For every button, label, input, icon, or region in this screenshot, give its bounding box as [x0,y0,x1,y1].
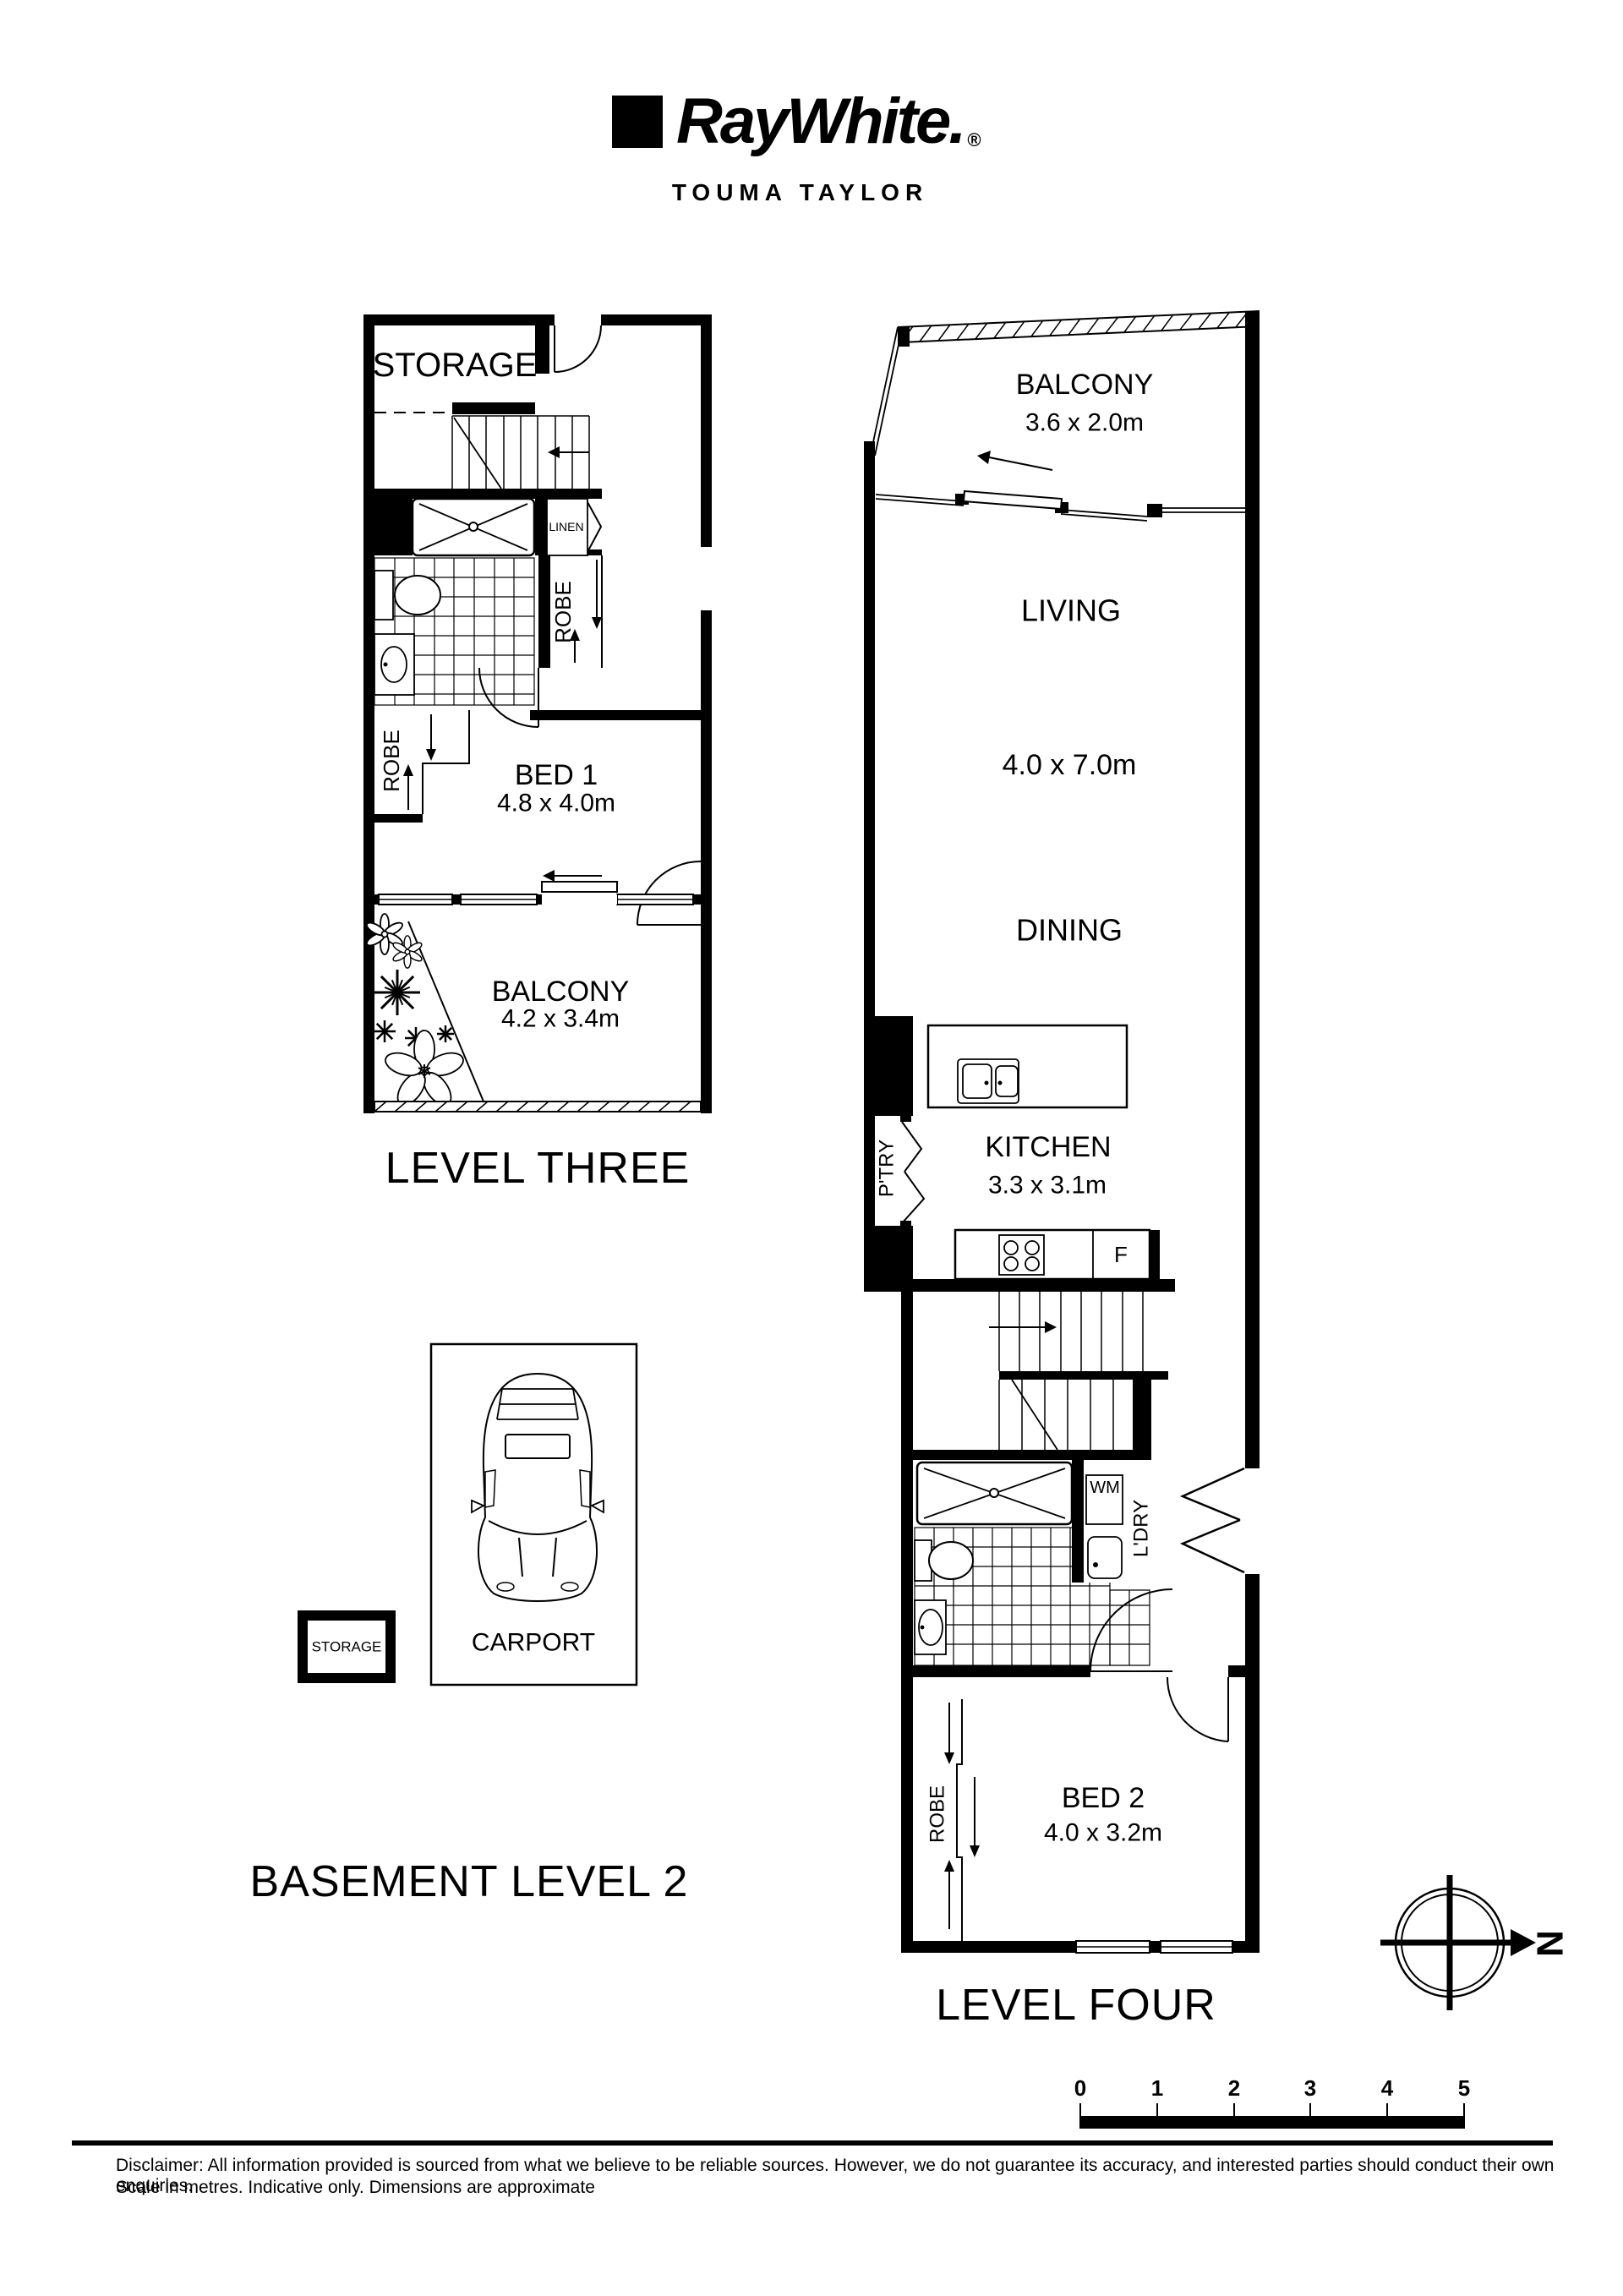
arrow-down-icon [944,1752,954,1764]
scale-label-5: 5 [1458,2075,1470,2102]
l3-bedroom-door-icon [637,861,701,925]
arrow-down-icon [970,1845,980,1857]
bed2-door-icon [1167,1677,1228,1741]
basement-storage-box: STORAGE [298,1610,396,1683]
bed2-label: BED 2 [1062,1782,1145,1814]
l3-bed1-robe: ROBE [379,710,469,814]
toilet-icon [395,576,440,615]
bed2-robe: ROBE [926,1699,981,1941]
level-three-title: LEVEL THREE [363,1143,712,1194]
l3-linen-closet: LINEN [547,499,602,555]
stair-arrow-icon [1045,1321,1057,1333]
sliding-door-panel [542,882,617,892]
level-four-plan: BALCONY 3.6 x 2.0m LIVING 4.0 x 7.0m DIN… [862,304,1264,1957]
scale-label-2: 2 [1228,2075,1240,2102]
scale-label-4: 4 [1381,2075,1393,2102]
bathroom-door-icon [1090,1589,1172,1671]
bed1-dims: 4.8 x 4.0m [497,790,615,817]
l3-hall-robe: ROBE [550,555,602,668]
north-label: N [1529,1930,1571,1957]
scale-bar-rule [1079,2116,1465,2129]
scale-tick [1386,2103,1388,2116]
plant-shrub-icon [437,1025,454,1042]
pantry: P'TRY [876,1122,925,1223]
level-three-plan: LINEN ROBE [363,314,712,1113]
level-four-title: LEVEL FOUR [862,1980,1290,2031]
plant-fern-icon [374,970,420,1015]
l3-window-wall [379,870,693,905]
storage-label: STORAGE [373,347,538,384]
dining-label: DINING [1016,913,1123,948]
car-icon [472,1374,604,1601]
basement-plan: CARPORT STORAGE [287,1340,668,1703]
balcony-dims: 4.2 x 3.4m [501,1005,620,1033]
l4-balcony-label: BALCONY [1016,369,1154,401]
laundry-tub-icon [1088,1537,1122,1578]
bed1-label: BED 1 [515,759,598,791]
scale-label-3: 3 [1304,2075,1316,2102]
arrow-down-icon [426,749,436,761]
laundry-nook: WM L'DRY [1084,1468,1244,1583]
registered-mark: ® [967,129,981,151]
bathroom-door-icon [479,668,538,727]
kitchen-bench: F [955,1230,1150,1279]
robe-hall-label: ROBE [550,581,576,643]
plant-big-flower-icon [383,1030,467,1110]
floorplan-page: RayWhite. ® TOUMA TAYLOR [0,0,1623,2296]
scale-label-1: 1 [1151,2075,1163,2102]
toilet-icon [929,1542,973,1579]
plant-shrub-icon [374,1020,396,1042]
scale-tick [1233,2103,1235,2116]
stair-arrow-icon [548,446,560,458]
fridge-label: F [1114,1242,1128,1267]
bifold-door-icon [1183,1520,1244,1572]
arrow-down-icon [592,617,602,629]
balcony-label: BALCONY [492,976,630,1008]
ray-white-logo: RayWhite. ® [612,85,981,158]
kitchen-dims: 3.3 x 3.1m [988,1172,1107,1200]
sliding-door-panel [964,491,1062,509]
living-dims: 4.0 x 7.0m [1003,749,1137,781]
l3-shower-icon [413,499,534,555]
l3-stairs [452,416,589,489]
l3-entry-door-icon [555,325,601,372]
slide-arrow-icon [977,451,991,464]
slide-arrow-icon [543,870,555,882]
disclaimer-line-2: Scale in metres. Indicative only. Dimens… [116,2178,595,2198]
arrow-up-icon [403,764,413,776]
scale-tick [1156,2103,1158,2116]
office-name: TOUMA TAYLOR [612,179,988,206]
l3-balcony: BALCONY 4.2 x 3.4m [365,914,701,1112]
bifold-door-icon [1183,1468,1244,1520]
logo-square-icon [612,96,663,148]
robe-bed1-label: ROBE [379,730,404,792]
bed2-dims: 4.0 x 3.2m [1044,1819,1162,1847]
wm-label: WM [1090,1479,1120,1497]
scale-label-0: 0 [1074,2075,1086,2102]
scale-bar: 0 1 2 3 4 5 [1065,2075,1479,2135]
scale-tick [1079,2103,1081,2116]
scale-tick [1309,2103,1311,2116]
brand-name: RayWhite. [676,85,964,158]
basement-title: BASEMENT LEVEL 2 [194,1856,744,1907]
l4-shower-icon [917,1462,1072,1524]
l3-bathroom [374,558,538,727]
scale-tick [1463,2103,1465,2116]
l4-stairs [989,1292,1143,1450]
kitchen-island [928,1025,1127,1107]
basement-storage-label: STORAGE [312,1639,382,1655]
laundry-label: L'DRY [1130,1500,1153,1557]
pantry-label: P'TRY [876,1140,899,1197]
footer-divider [72,2140,1553,2146]
toilet-tank-icon [374,571,393,620]
linen-label: LINEN [549,520,583,533]
robe-bed2-label: ROBE [926,1785,949,1843]
compass-icon: N [1378,1872,1589,2016]
living-label: LIVING [1021,593,1121,628]
kitchen-label: KITCHEN [985,1131,1111,1163]
carport-label: CARPORT [472,1629,595,1657]
l4-balcony-dims: 3.6 x 2.0m [1025,409,1144,437]
arrow-up-icon [944,1860,954,1872]
